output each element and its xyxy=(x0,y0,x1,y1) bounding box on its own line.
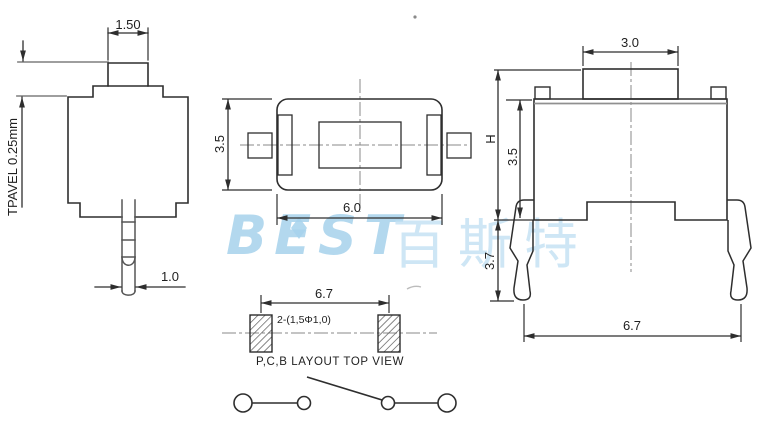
dim-label-body-height: 3.5 xyxy=(505,148,520,166)
pin-dome-detail xyxy=(122,257,135,265)
hole-spec-note: 2-(1,5Φ1,0) xyxy=(277,314,331,326)
switch-arm xyxy=(307,377,382,400)
technical-drawing-sheet: BEST 百斯特 TPAVEL 0.25mm 1.50 xyxy=(0,0,767,430)
dim-label-body-width: 6.0 xyxy=(343,200,361,215)
front-view: H 3.5 3.7 3.0 6.7 xyxy=(482,35,751,342)
contact-circle-left xyxy=(298,397,311,410)
left-pad xyxy=(250,315,272,352)
travel-label: TPAVEL 0.25mm xyxy=(5,118,20,216)
dim-label-body-height: 3.5 xyxy=(212,135,227,153)
schematic-symbol xyxy=(234,377,456,412)
dim-label-button-width: 3.0 xyxy=(621,35,639,50)
dim-label-leg-length: 3.7 xyxy=(482,252,497,270)
dim-label-lead-span: 6.7 xyxy=(623,318,641,333)
right-top-tab xyxy=(711,87,726,99)
contact-circle-right xyxy=(382,397,395,410)
watermark: BEST 百斯特 xyxy=(226,204,590,276)
left-top-tab xyxy=(535,87,550,99)
through-hole-pin xyxy=(122,200,135,295)
dim-label-total-height: H xyxy=(483,134,498,143)
dim-label-pin-width: 1.0 xyxy=(161,269,179,284)
scan-smudge-artifact xyxy=(407,286,421,289)
pin-tip xyxy=(122,291,135,295)
pcb-layout-view: 6.7 2-(1,5Φ1,0) P,C,B LAYOUT TOP VIEW xyxy=(222,286,437,368)
tact-switch-drawing: BEST 百斯特 TPAVEL 0.25mm 1.50 xyxy=(0,0,767,430)
terminal-circle-1 xyxy=(234,394,252,412)
watermark-logo-text: BEST xyxy=(226,204,408,267)
right-leg xyxy=(727,200,751,300)
dim-label-button-width: 1.50 xyxy=(115,17,140,32)
right-pad xyxy=(378,315,400,352)
side-view: TPAVEL 0.25mm 1.50 1.0 xyxy=(5,17,188,295)
scan-dot-artifact xyxy=(413,15,416,18)
terminal-circle-2 xyxy=(438,394,456,412)
dim-label-pad-pitch: 6.7 xyxy=(315,286,333,301)
pcb-view-caption: P,C,B LAYOUT TOP VIEW xyxy=(256,356,404,368)
